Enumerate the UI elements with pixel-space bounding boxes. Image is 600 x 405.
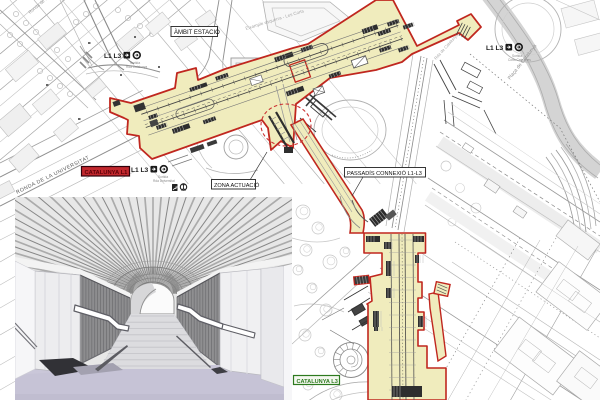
svg-text:CATALUNYA L3: CATALUNYA L3 xyxy=(297,379,338,385)
svg-text:L3: L3 xyxy=(141,167,149,174)
svg-text:L1: L1 xyxy=(131,167,139,174)
svg-text:Corts Catalanes: Corts Catalanes xyxy=(508,58,531,62)
svg-text:Rda Universitat: Rda Universitat xyxy=(153,179,175,183)
svg-text:ZONA ACTUACIÓ: ZONA ACTUACIÓ xyxy=(214,182,260,189)
svg-text:L1: L1 xyxy=(104,53,112,60)
svg-text:L1: L1 xyxy=(486,45,494,52)
svg-text:Rda Catalunya: Rda Catalunya xyxy=(126,65,147,69)
svg-text:L3: L3 xyxy=(496,45,504,52)
svg-text:CATALUNYA L1: CATALUNYA L1 xyxy=(85,170,129,176)
svg-text:PASSADÍS CONNEXIÓ L1-L3: PASSADÍS CONNEXIÓ L1-L3 xyxy=(347,170,422,177)
svg-text:L3: L3 xyxy=(114,53,122,60)
svg-text:ÀMBIT ESTACIÓ: ÀMBIT ESTACIÓ xyxy=(174,29,220,36)
